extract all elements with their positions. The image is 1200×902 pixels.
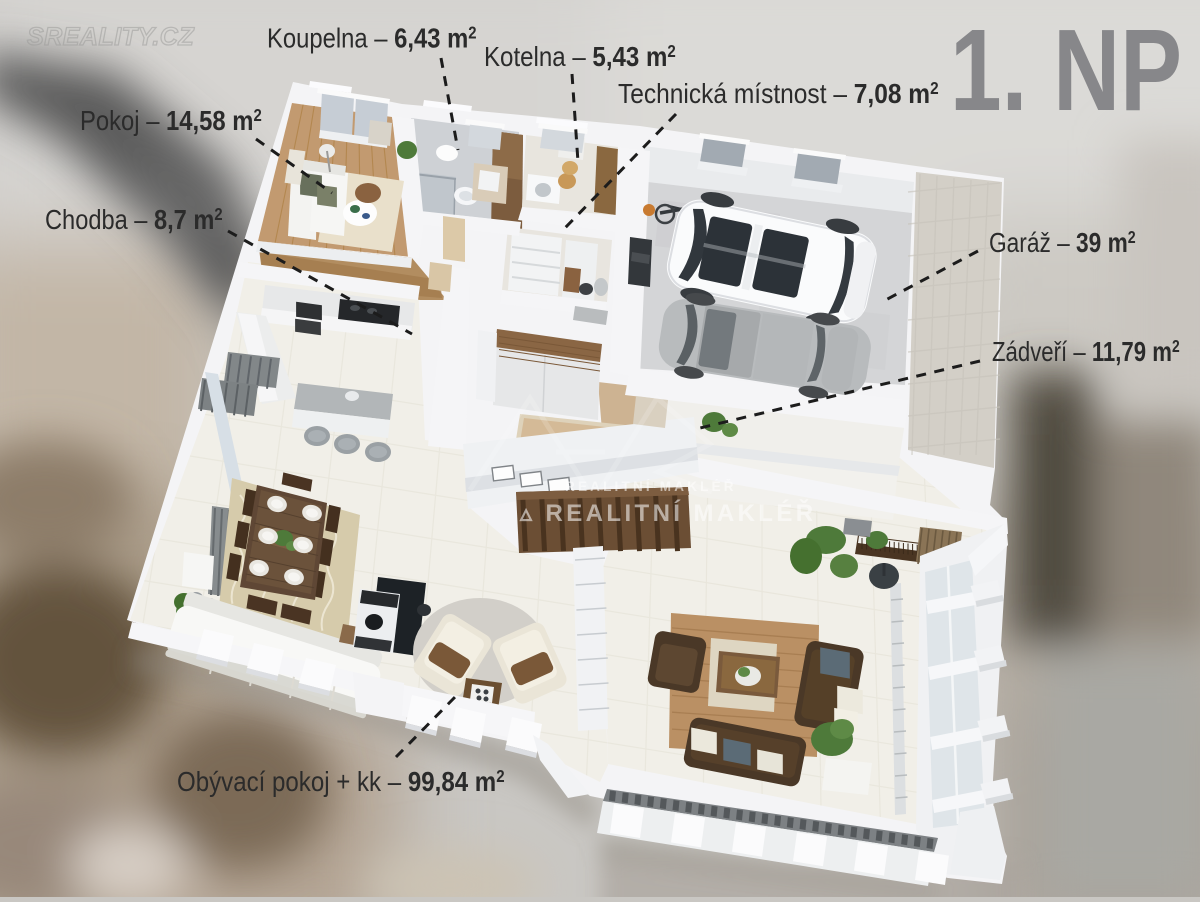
svg-text:Chodba – 8,7 m2: Chodba – 8,7 m2 [45, 205, 223, 236]
svg-text:▵ REALITNÍ MAKLÉŘ: ▵ REALITNÍ MAKLÉŘ [519, 499, 817, 527]
svg-text:Zádveří – 11,79 m2: Zádveří – 11,79 m2 [992, 337, 1180, 368]
svg-text:Garáž – 39 m2: Garáž – 39 m2 [989, 228, 1136, 259]
svg-text:Kotelna – 5,43 m2: Kotelna – 5,43 m2 [484, 40, 676, 72]
svg-text:1. NP: 1. NP [950, 6, 1182, 135]
svg-text:SREALITY.CZ: SREALITY.CZ [27, 23, 195, 51]
svg-text:Technická místnost – 7,08 m2: Technická místnost – 7,08 m2 [618, 77, 939, 109]
svg-text:Koupelna – 6,43 m2: Koupelna – 6,43 m2 [267, 22, 477, 54]
svg-text:Obývací pokoj + kk – 99,84 m2: Obývací pokoj + kk – 99,84 m2 [177, 765, 505, 797]
svg-text:Pokoj – 14,58 m2: Pokoj – 14,58 m2 [80, 104, 262, 136]
